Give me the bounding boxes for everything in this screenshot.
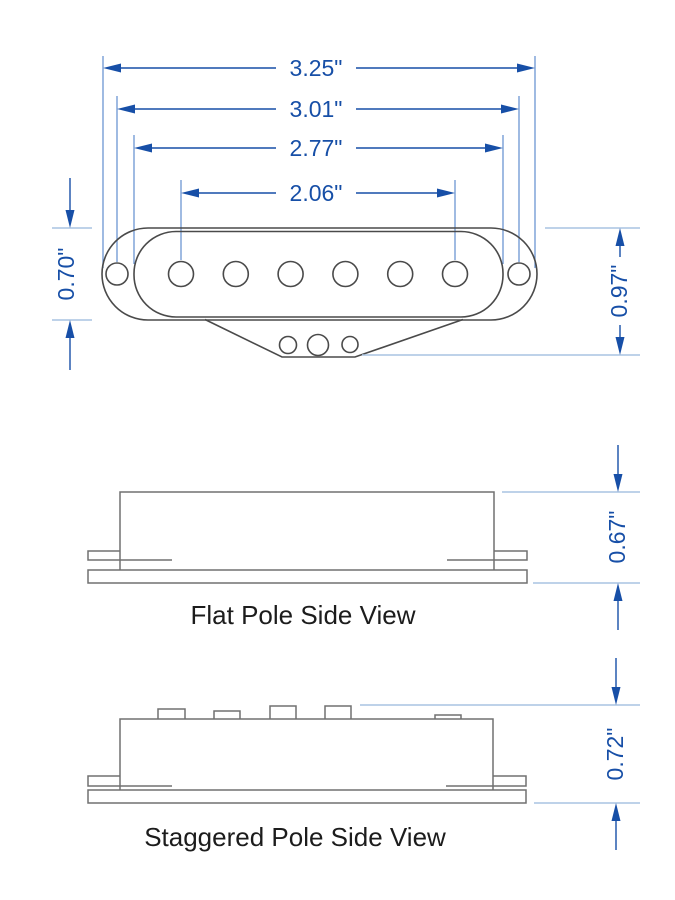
dim-label-pole-span: 2.06" xyxy=(290,180,343,206)
drawing-page: 3.25" 3.01" 2.77" 2.06" xyxy=(0,0,675,900)
dimension-arrowhead-icon xyxy=(117,105,135,114)
flange-hole-left xyxy=(280,337,297,354)
pickup-dimension-drawing: 3.25" 3.01" 2.77" 2.06" xyxy=(0,0,675,900)
flat-pole-side-view: Flat Pole Side View 0.67" xyxy=(88,445,640,630)
pickup-baseplate-outline xyxy=(102,228,537,320)
flange-hole-center xyxy=(308,335,329,356)
dimension-arrowhead-icon xyxy=(616,337,625,355)
top-view-extension-lines xyxy=(103,56,535,268)
dimension-arrowhead-icon xyxy=(103,64,121,73)
staggered-pole-bump-4 xyxy=(325,706,351,719)
staggered-pole-view-label: Staggered Pole Side View xyxy=(144,822,446,852)
dimension-arrowhead-icon xyxy=(66,320,75,338)
dimension-arrowhead-icon xyxy=(612,687,621,705)
pickup-bobbin-outline xyxy=(134,232,503,318)
dim-overall-depth: 0.97" xyxy=(362,228,640,355)
flat-bottom-plate xyxy=(88,570,527,583)
dimension-arrowhead-icon xyxy=(616,228,625,246)
staggered-pole-bump-1 xyxy=(158,709,185,719)
pole-piece-5 xyxy=(388,262,413,287)
dimension-arrowhead-icon xyxy=(66,210,75,228)
top-view: 3.25" 3.01" 2.77" 2.06" xyxy=(52,55,640,370)
pole-piece-3 xyxy=(278,262,303,287)
staggered-right-tab xyxy=(446,776,526,786)
dimension-arrowhead-icon xyxy=(501,105,519,114)
flat-right-tab xyxy=(447,551,527,560)
wiring-flange-outline xyxy=(205,320,463,358)
flat-left-tab xyxy=(88,551,172,560)
flat-body-outline xyxy=(120,492,494,570)
staggered-pole-bump-2 xyxy=(214,711,240,719)
staggered-bottom-plate xyxy=(88,790,526,803)
flat-pole-view-label: Flat Pole Side View xyxy=(191,600,416,630)
staggered-pole-side-view: Staggered Pole Side View 0.72" xyxy=(88,658,640,852)
mount-hole-left xyxy=(106,263,128,285)
pole-piece-6 xyxy=(443,262,468,287)
mount-hole-right xyxy=(508,263,530,285)
staggered-body-outline xyxy=(120,719,493,790)
dim-pole-span: 2.06" xyxy=(181,180,455,206)
dimension-arrowhead-icon xyxy=(612,803,621,821)
flat-pole-outline xyxy=(88,492,527,583)
dim-label-flat-height: 0.67" xyxy=(604,511,630,564)
dim-label-mount-spacing: 3.01" xyxy=(290,96,343,122)
dim-label-overall-width: 3.25" xyxy=(290,55,343,81)
staggered-left-tab xyxy=(88,776,172,786)
dimension-arrowhead-icon xyxy=(134,144,152,153)
dim-flat-height: 0.67" xyxy=(502,445,640,630)
pole-piece-1 xyxy=(169,262,194,287)
dimension-arrowhead-icon xyxy=(181,189,199,198)
dimension-arrowhead-icon xyxy=(614,474,623,492)
dimension-arrowhead-icon xyxy=(437,189,455,198)
dim-label-overall-depth: 0.97" xyxy=(606,265,632,318)
staggered-pole-bump-3 xyxy=(270,706,296,719)
dim-label-body-depth: 0.70" xyxy=(53,248,79,301)
dim-label-bobbin-width: 2.77" xyxy=(290,135,343,161)
flange-hole-right xyxy=(342,337,358,353)
dim-label-staggered-height: 0.72" xyxy=(602,728,628,781)
dimension-arrowhead-icon xyxy=(485,144,503,153)
dimension-arrowhead-icon xyxy=(614,583,623,601)
dimension-arrowhead-icon xyxy=(517,64,535,73)
dim-body-depth: 0.70" xyxy=(52,178,92,370)
pole-piece-2 xyxy=(223,262,248,287)
dim-overall-width: 3.25" xyxy=(103,55,535,81)
staggered-pole-outline xyxy=(88,706,526,803)
dim-mount-hole-spacing: 3.01" xyxy=(117,96,519,122)
pickup-top-outline xyxy=(102,228,537,357)
dim-bobbin-width: 2.77" xyxy=(134,135,503,161)
pole-piece-4 xyxy=(333,262,358,287)
